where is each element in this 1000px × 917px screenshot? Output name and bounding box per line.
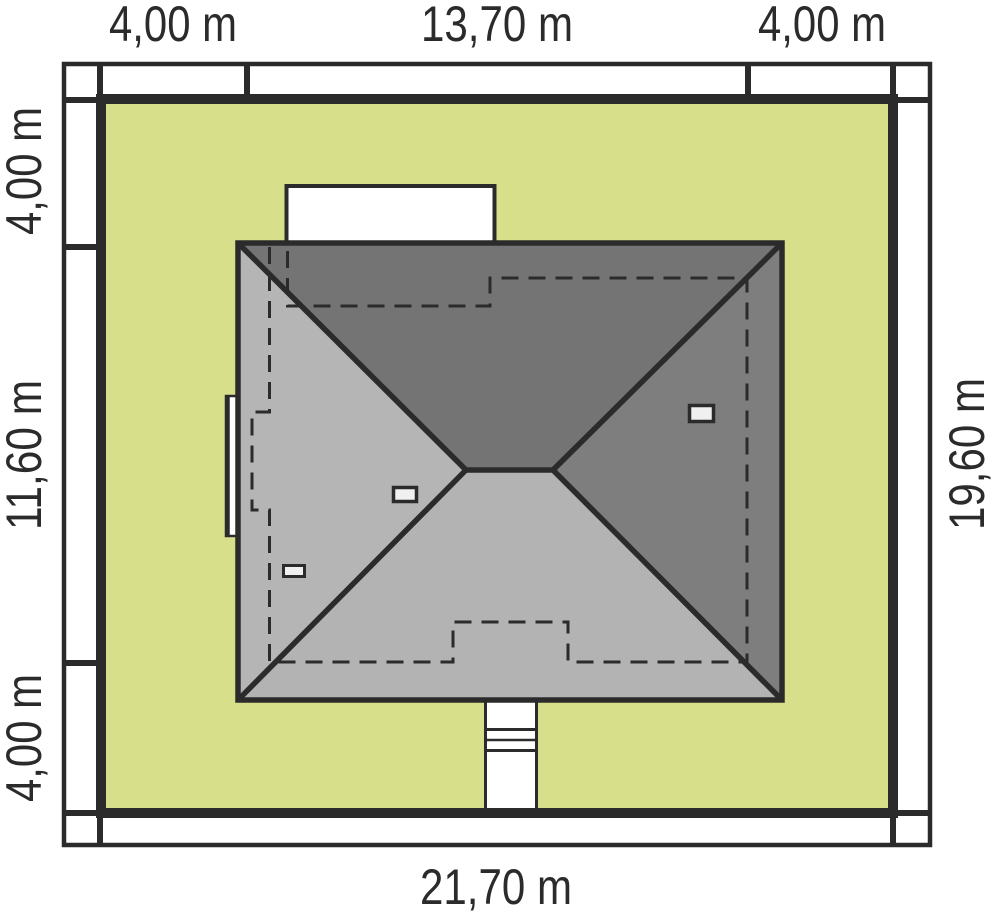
roof-vent-southwest [284, 566, 305, 577]
dim-left-middle: 11,60 m [0, 380, 52, 530]
entrance-path [484, 701, 538, 808]
dim-right-middle: 19,60 m [939, 378, 995, 530]
site-plan-drawing: 4,00 m 13,70 m 4,00 m 4,00 m 11,60 m 4,0… [0, 0, 1000, 917]
dim-top-center: 13,70 m [421, 0, 573, 52]
dim-bottom-center: 21,70 m [420, 859, 572, 915]
dim-top-right: 4,00 m [758, 0, 886, 52]
dim-left-bottom: 4,00 m [0, 674, 52, 802]
hip-roof [238, 243, 782, 700]
dim-top-left: 4,00 m [109, 0, 237, 52]
terrace [287, 186, 495, 244]
roof-vent-west [394, 488, 417, 502]
roof-vent-east [690, 406, 714, 422]
site-plan: 4,00 m 13,70 m 4,00 m 4,00 m 11,60 m 4,0… [0, 0, 1000, 917]
entrance-path-surface [484, 701, 538, 808]
dim-left-top: 4,00 m [0, 107, 52, 235]
